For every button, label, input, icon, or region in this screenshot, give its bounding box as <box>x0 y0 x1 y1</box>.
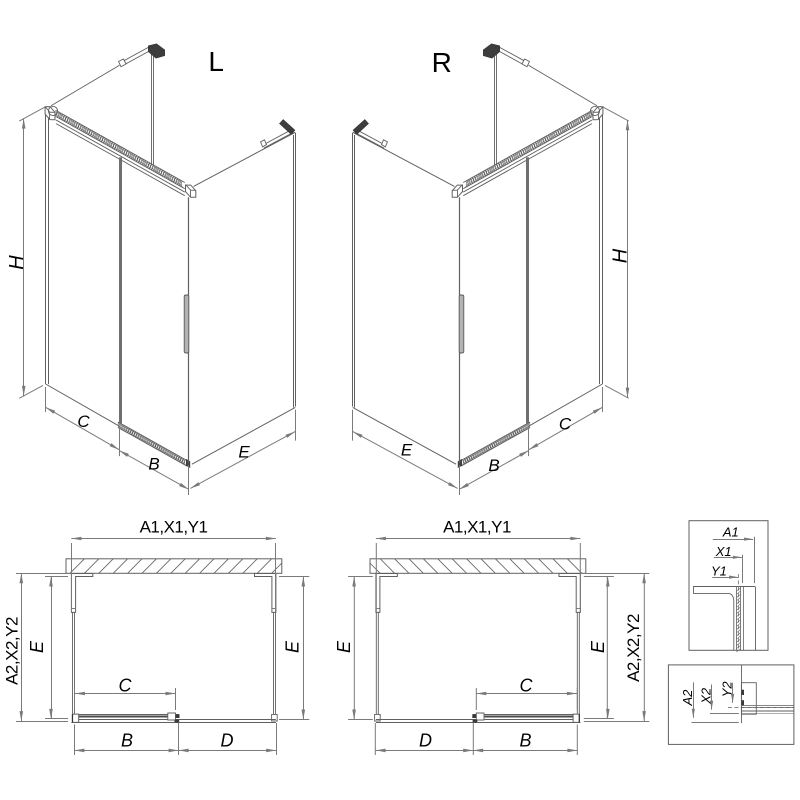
svg-text:C: C <box>559 415 572 434</box>
svg-text:D: D <box>419 731 432 751</box>
svg-text:E: E <box>283 640 303 653</box>
svg-text:A2,X2,Y2: A2,X2,Y2 <box>3 617 22 685</box>
svg-text:H: H <box>610 248 632 263</box>
svg-text:E: E <box>27 640 47 653</box>
svg-text:B: B <box>121 731 133 751</box>
svg-text:B: B <box>519 731 531 751</box>
svg-text:C: C <box>77 412 90 431</box>
svg-text:B: B <box>148 455 159 474</box>
svg-text:E: E <box>401 441 413 460</box>
svg-text:Y2: Y2 <box>720 681 735 698</box>
svg-text:E: E <box>588 640 608 653</box>
svg-text:D: D <box>221 731 234 751</box>
svg-text:E: E <box>334 640 354 653</box>
svg-text:A1,X1,Y1: A1,X1,Y1 <box>140 518 208 537</box>
svg-text:H: H <box>6 255 28 270</box>
svg-text:B: B <box>488 456 499 475</box>
svg-text:Y1: Y1 <box>711 564 727 579</box>
svg-text:E: E <box>238 443 250 462</box>
svg-text:A1,X1,Y1: A1,X1,Y1 <box>443 518 511 537</box>
svg-text:C: C <box>119 675 133 695</box>
svg-text:A1: A1 <box>722 524 739 539</box>
svg-text:X1: X1 <box>715 544 732 559</box>
svg-text:L: L <box>208 46 224 77</box>
svg-text:X2: X2 <box>699 687 714 705</box>
svg-text:A2,X2,Y2: A2,X2,Y2 <box>624 614 643 682</box>
svg-text:C: C <box>520 675 534 695</box>
svg-text:R: R <box>432 47 452 78</box>
svg-text:A2: A2 <box>680 689 695 707</box>
